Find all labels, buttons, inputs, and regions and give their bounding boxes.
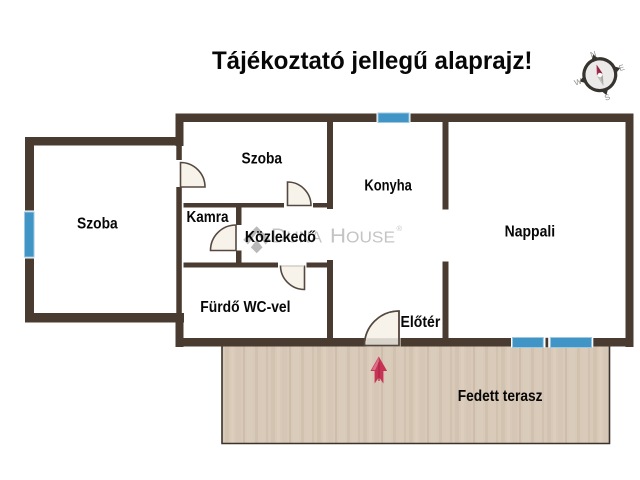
svg-text:®: ® xyxy=(397,224,403,233)
svg-text:Kamra: Kamra xyxy=(187,209,229,226)
svg-text:Tájékoztató jellegű alaprajz!: Tájékoztató jellegű alaprajz! xyxy=(212,47,533,75)
svg-text:E: E xyxy=(618,63,626,73)
svg-text:Előtér: Előtér xyxy=(401,314,441,331)
svg-text:S: S xyxy=(603,92,611,102)
svg-text:Szoba: Szoba xyxy=(242,151,283,168)
svg-text:Nappali: Nappali xyxy=(505,223,556,240)
svg-text:HOUSE: HOUSE xyxy=(330,225,395,248)
svg-text:N: N xyxy=(589,49,597,59)
svg-text:Konyha: Konyha xyxy=(364,178,412,195)
svg-text:Fürdő WC-vel: Fürdő WC-vel xyxy=(200,299,290,316)
svg-text:W: W xyxy=(573,77,583,88)
svg-text:Fedett terasz: Fedett terasz xyxy=(458,388,543,405)
svg-text:Közlekedő: Közlekedő xyxy=(245,229,316,246)
svg-text:Szoba: Szoba xyxy=(77,216,118,233)
